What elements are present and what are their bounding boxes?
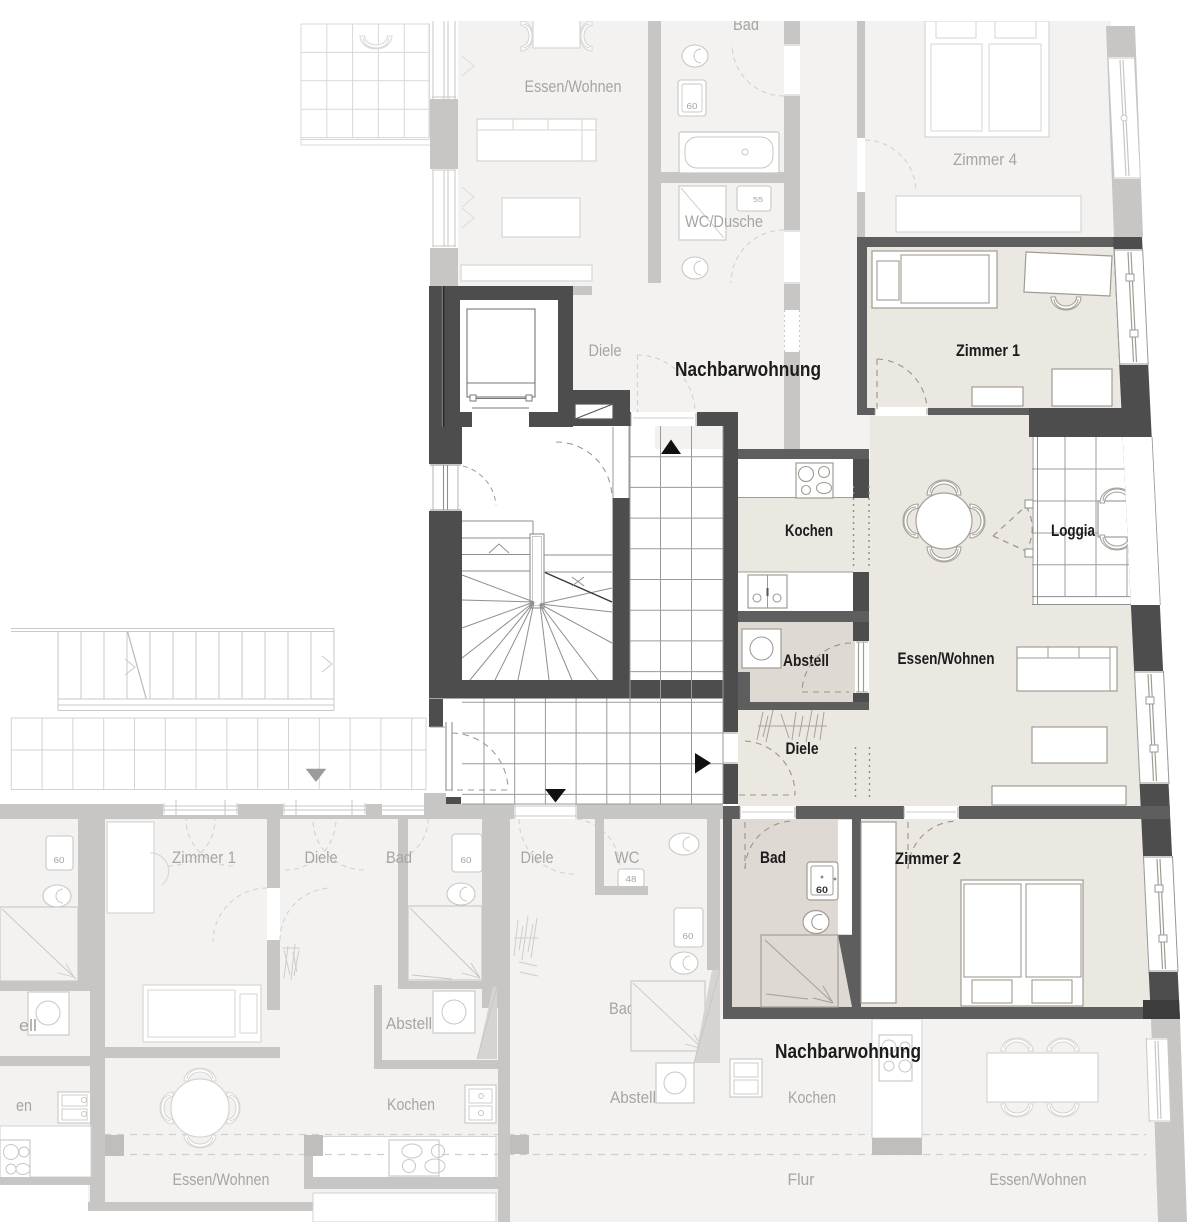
svg-text:Zimmer 4: Zimmer 4 bbox=[953, 151, 1017, 169]
svg-text:Abstell: Abstell bbox=[386, 1015, 432, 1033]
svg-text:60: 60 bbox=[683, 931, 694, 941]
svg-text:Diele: Diele bbox=[521, 849, 554, 867]
svg-text:Diele: Diele bbox=[589, 342, 622, 360]
svg-text:Kochen: Kochen bbox=[387, 1096, 435, 1114]
svg-text:Abstell: Abstell bbox=[783, 652, 829, 670]
svg-text:WC: WC bbox=[615, 849, 640, 867]
svg-text:Flur: Flur bbox=[788, 1171, 815, 1189]
svg-text:48: 48 bbox=[626, 874, 637, 884]
svg-text:Zimmer 1: Zimmer 1 bbox=[172, 849, 236, 867]
svg-text:ell: ell bbox=[19, 1017, 37, 1035]
svg-text:Zimmer 2: Zimmer 2 bbox=[895, 850, 961, 868]
svg-text:en: en bbox=[16, 1097, 32, 1115]
svg-text:Diele: Diele bbox=[305, 849, 338, 867]
svg-text:Essen/Wohnen: Essen/Wohnen bbox=[990, 1171, 1087, 1189]
svg-text:Zimmer 1: Zimmer 1 bbox=[956, 342, 1020, 360]
svg-text:WC/Dusche: WC/Dusche bbox=[685, 213, 763, 231]
svg-text:Loggia: Loggia bbox=[1051, 522, 1096, 540]
svg-text:Kochen: Kochen bbox=[788, 1089, 836, 1107]
svg-text:Essen/Wohnen: Essen/Wohnen bbox=[525, 78, 622, 96]
svg-text:60: 60 bbox=[687, 101, 698, 111]
svg-text:Bad: Bad bbox=[760, 849, 786, 867]
svg-text:60: 60 bbox=[816, 885, 828, 895]
svg-text:Nachbarwohnung: Nachbarwohnung bbox=[775, 1040, 921, 1063]
svg-text:Nachbarwohnung: Nachbarwohnung bbox=[675, 358, 821, 381]
svg-text:60: 60 bbox=[461, 855, 472, 865]
svg-text:Abstell: Abstell bbox=[610, 1089, 656, 1107]
svg-text:Essen/Wohnen: Essen/Wohnen bbox=[173, 1171, 270, 1189]
svg-text:Kochen: Kochen bbox=[785, 522, 833, 540]
svg-text:Bad: Bad bbox=[386, 849, 412, 867]
svg-text:60: 60 bbox=[54, 855, 65, 865]
svg-text:Diele: Diele bbox=[786, 740, 819, 758]
svg-text:55: 55 bbox=[753, 195, 763, 204]
svg-text:Essen/Wohnen: Essen/Wohnen bbox=[898, 650, 995, 668]
